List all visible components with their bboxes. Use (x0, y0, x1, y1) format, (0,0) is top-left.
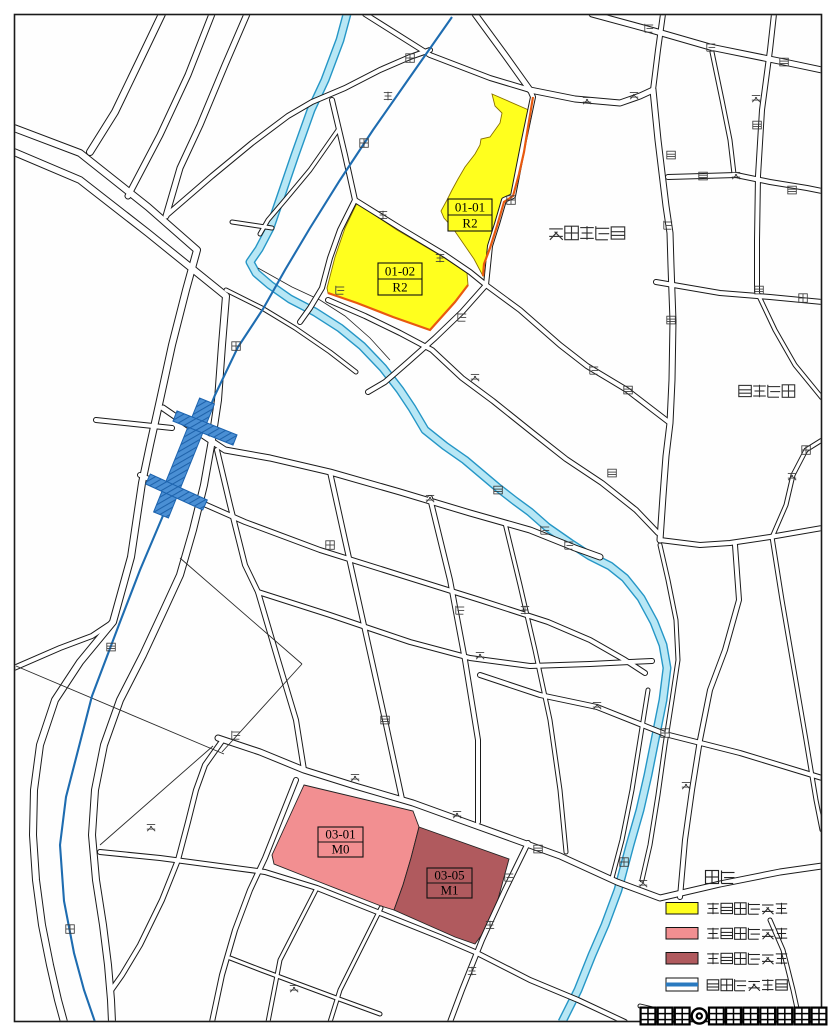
svg-text:03-01: 03-01 (325, 827, 355, 842)
svg-text:03-05: 03-05 (434, 868, 464, 883)
svg-text:M1: M1 (440, 883, 458, 898)
svg-text:R2: R2 (462, 216, 477, 231)
svg-text:01-02: 01-02 (385, 264, 415, 279)
svg-text:01-01: 01-01 (455, 200, 485, 215)
svg-text:M0: M0 (331, 842, 349, 857)
svg-text:R2: R2 (392, 280, 407, 295)
